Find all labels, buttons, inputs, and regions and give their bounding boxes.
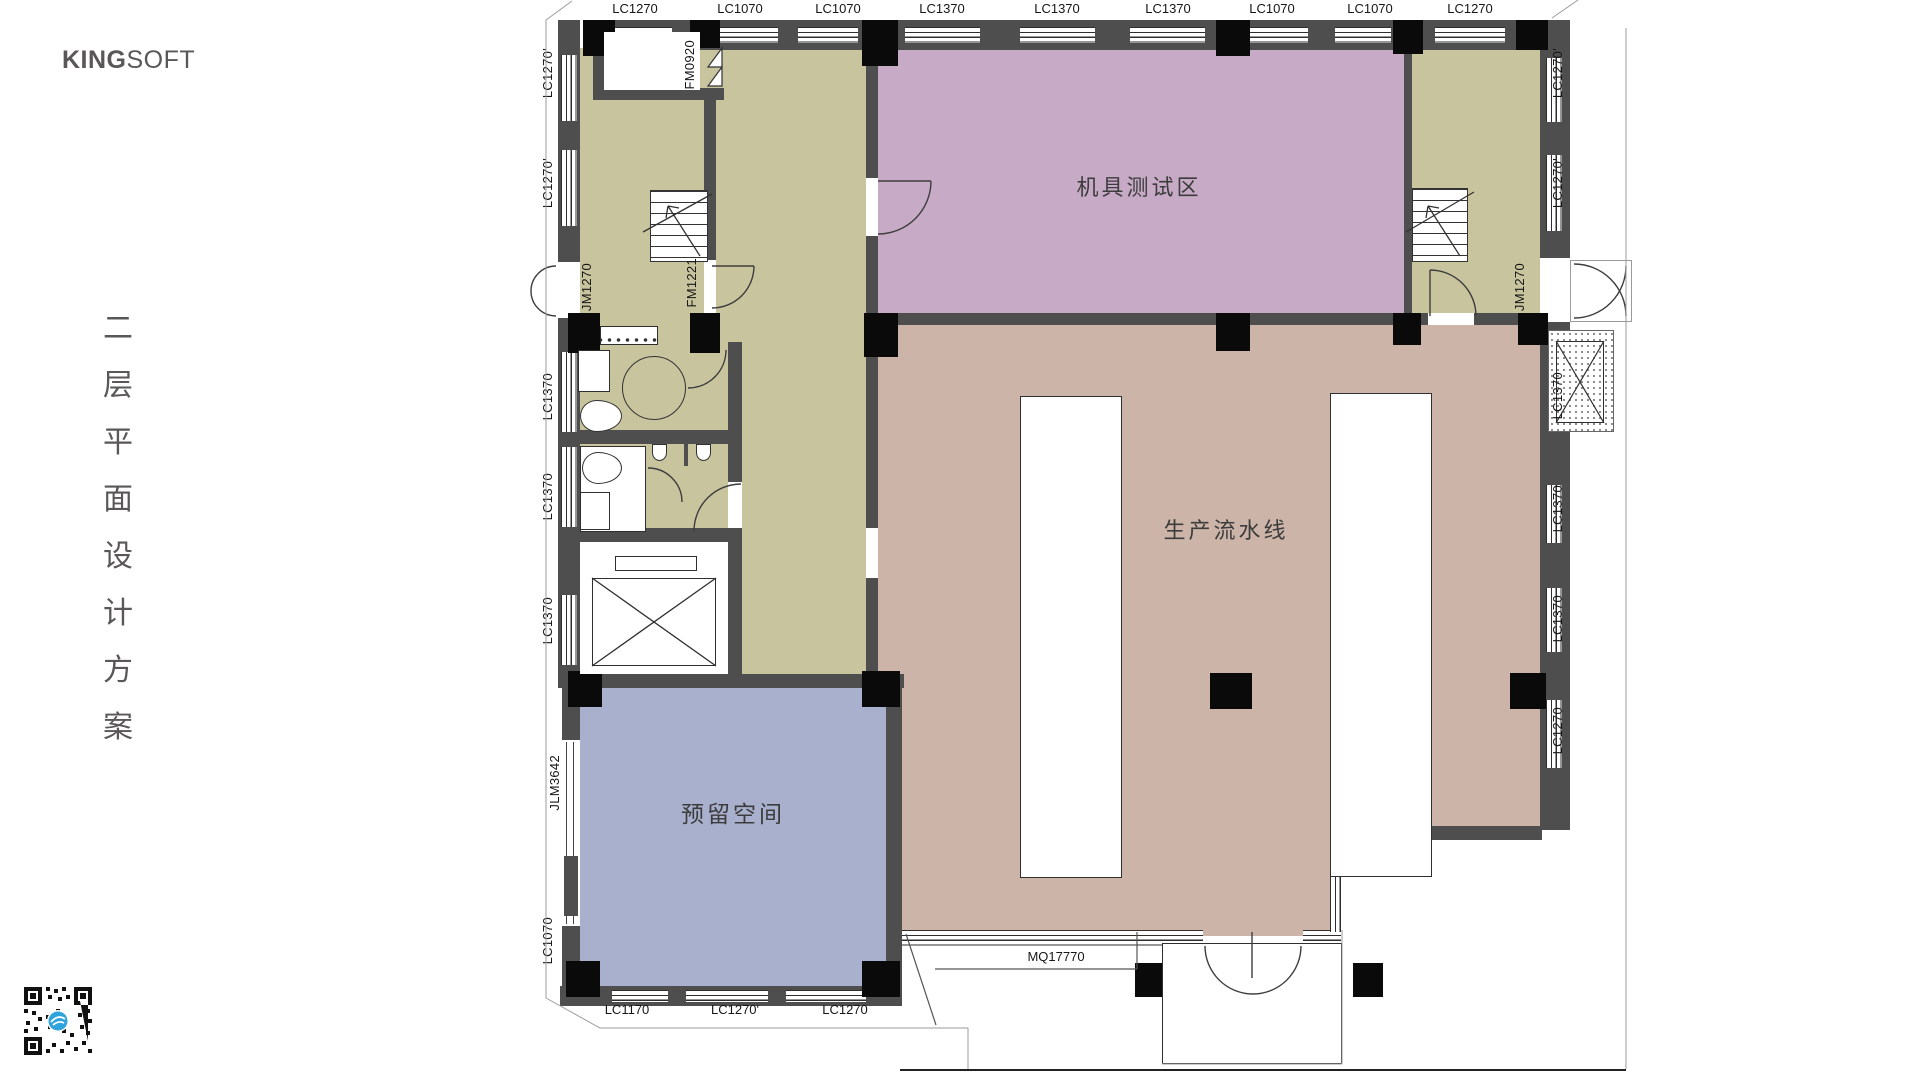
room-production-line (866, 322, 1540, 830)
column (862, 20, 898, 66)
column (1135, 963, 1165, 997)
wall-stairhall-west (1404, 46, 1412, 316)
room-reserved-space (576, 680, 890, 992)
window-label-left: LC1070 (541, 917, 555, 964)
door-label-right: JM1270 (1513, 263, 1527, 311)
door-opening-stairhall (1428, 313, 1474, 325)
sink-fixture (580, 492, 610, 530)
column (1216, 20, 1250, 56)
window-left (561, 595, 577, 665)
column (568, 671, 602, 707)
window-label-top: LC1070 (708, 1, 772, 16)
column (1510, 673, 1546, 709)
window-top (1130, 27, 1205, 43)
sliding-door-leaf (564, 856, 578, 916)
logo-light: SOFT (127, 46, 196, 74)
wall-corridor-east (866, 46, 878, 676)
counter-fixture (600, 326, 658, 345)
room-label-testing: 机具测试区 (1054, 170, 1224, 202)
window-bottom (612, 990, 668, 1002)
window-label-bottom: LC1270' (703, 1002, 767, 1017)
window-label-right: LC1370 (1551, 485, 1565, 532)
window-left (561, 150, 577, 226)
stairs-left (650, 190, 708, 262)
window-top (798, 27, 858, 43)
column (1516, 20, 1548, 50)
door-opening-lobby (728, 482, 742, 532)
door-opening-testing (866, 178, 878, 236)
door-opening-corridor (866, 528, 878, 578)
door-opening-fm1221 (704, 260, 716, 314)
title-char: 面 (99, 471, 137, 528)
window-label-top: LC1370 (1136, 1, 1200, 16)
column (568, 313, 600, 353)
window-bottom (786, 990, 866, 1002)
production-table (1020, 396, 1122, 878)
window-label-top: LC1070 (1240, 1, 1304, 16)
stairs-right (1412, 188, 1468, 262)
window-label-right: LC1370 (1551, 595, 1565, 642)
window-label-top: LC1270 (1438, 1, 1502, 16)
room-label-production: 生产流水线 (1141, 513, 1311, 545)
title-char: 二 (99, 300, 137, 357)
door-label-jlm3642: JLM3642 (548, 755, 562, 811)
column (566, 961, 600, 997)
column (862, 961, 900, 997)
window-label-right: LC1270' (1551, 48, 1565, 98)
window-label-top: LC1070 (806, 1, 870, 16)
wall-reserved-right (886, 676, 902, 1006)
window-bottom (686, 990, 768, 1002)
elevator-shaft (592, 578, 716, 666)
title-char: 方 (99, 642, 137, 699)
sink-fixture (578, 350, 610, 392)
title-char: 平 (99, 414, 137, 471)
window-label-bottom: LC1170 (595, 1002, 659, 1017)
title-char: 计 (99, 585, 137, 642)
column (1393, 313, 1421, 345)
column (1216, 313, 1250, 351)
door-label-fm1221: FM1221 (685, 258, 699, 308)
door-label-left: JM1270 (580, 263, 594, 311)
wall-corridor-bottom (558, 674, 904, 688)
window-label-top: LC1370 (1025, 1, 1089, 16)
door-label-fm0920: FM0920 (683, 40, 697, 90)
window-label-bottom: LC1270 (813, 1002, 877, 1017)
window-label-left: LC1270' (541, 158, 555, 208)
column (1210, 673, 1252, 709)
urinal-fixture (652, 444, 667, 461)
title-char: 设 (99, 528, 137, 585)
balcony-right (1570, 260, 1632, 322)
entrance-vestibule (1162, 943, 1342, 1064)
column (1518, 313, 1548, 345)
column (690, 313, 720, 353)
wall-bath-divider (580, 430, 742, 444)
window-left (561, 352, 577, 432)
door-opening-jm1270-left (554, 262, 580, 318)
window-label-left: LC1370 (541, 597, 555, 644)
qr-code (22, 985, 94, 1057)
window-label-left: LC1270' (541, 48, 555, 98)
column (864, 313, 898, 357)
window-label-left: LC1370 (541, 373, 555, 420)
window-label-left: LC1370 (541, 473, 555, 520)
window-label-right: LC1270 (1551, 707, 1565, 754)
room-label-reserved: 预留空间 (648, 795, 818, 829)
urinal-fixture (696, 444, 711, 461)
column (862, 671, 900, 707)
production-table (1330, 393, 1432, 877)
kingsoft-logo: KINGSOFT (62, 46, 195, 75)
turning-circle (622, 356, 686, 420)
elevator-door-slot (615, 556, 697, 571)
window-label-top: LC1270 (603, 1, 667, 16)
title-char: 层 (99, 357, 137, 414)
window-top (1020, 27, 1095, 43)
window-top (1335, 27, 1391, 43)
window-label-right: LC1270' (1551, 158, 1565, 208)
column (1353, 963, 1383, 997)
window-top (1435, 27, 1505, 43)
window-label-top: LC1070 (1338, 1, 1402, 16)
window-left (561, 447, 577, 527)
curtain-wall-label: MQ17770 (1018, 949, 1094, 964)
window-label-right: LC1370 (1551, 372, 1565, 419)
title-char: 案 (99, 699, 137, 756)
curtain-wall (902, 930, 1203, 946)
window-left (561, 55, 577, 121)
page-title: 二 层 平 面 设 计 方 案 (99, 300, 137, 756)
column (1393, 20, 1423, 54)
window-top (905, 27, 980, 43)
window-label-top: LC1370 (910, 1, 974, 16)
wall-urinal-stub (684, 444, 688, 466)
logo-bold: KING (62, 46, 127, 74)
